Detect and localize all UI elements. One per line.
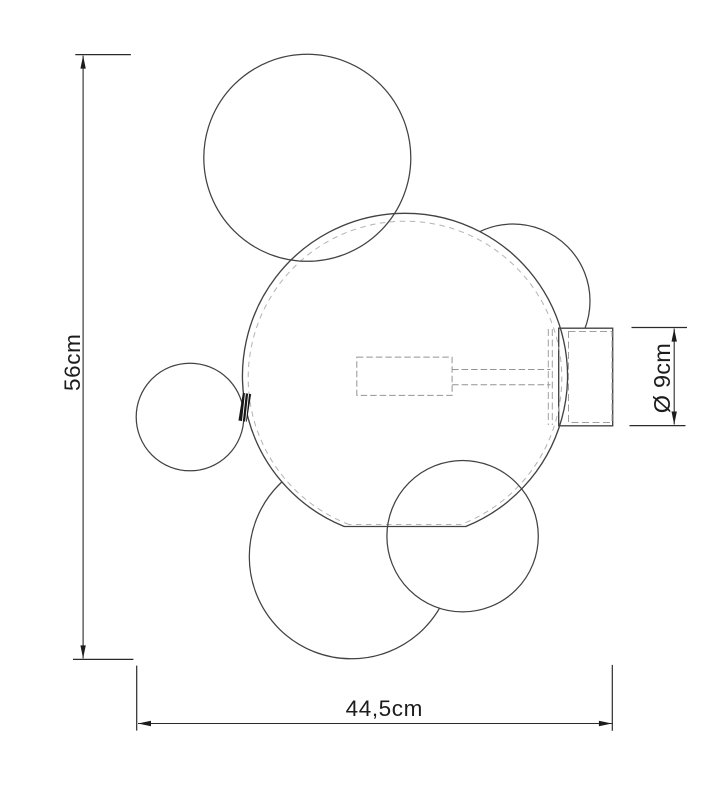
svg-text:Ø 9cm: Ø 9cm: [649, 343, 675, 413]
svg-text:56cm: 56cm: [60, 334, 85, 391]
svg-text:44,5cm: 44,5cm: [346, 696, 423, 721]
